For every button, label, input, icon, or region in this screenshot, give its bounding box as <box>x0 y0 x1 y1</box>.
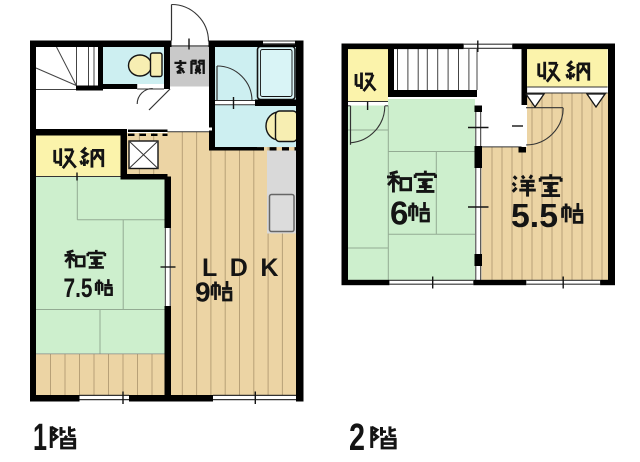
svg-text:5.5: 5.5 <box>511 197 558 234</box>
svg-text:2: 2 <box>349 417 365 459</box>
svg-text:6: 6 <box>390 195 408 232</box>
svg-text:1: 1 <box>33 417 47 459</box>
svg-text:9: 9 <box>195 277 211 308</box>
svg-text:7.5: 7.5 <box>64 273 93 303</box>
svg-text:LDK: LDK <box>202 254 291 282</box>
